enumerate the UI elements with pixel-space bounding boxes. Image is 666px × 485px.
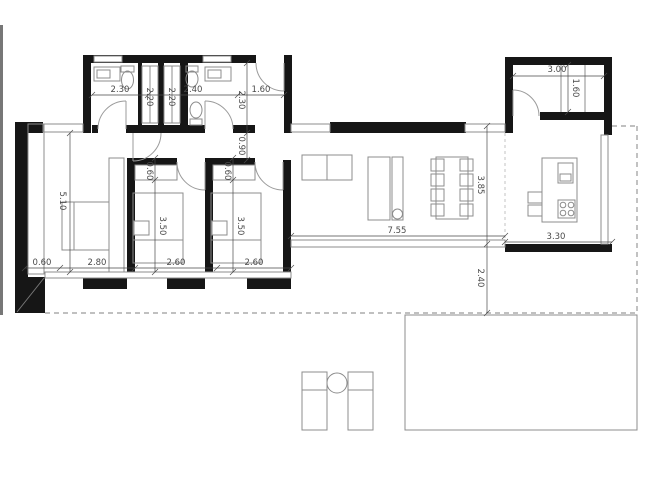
dim-label-store-width: 3.00 bbox=[548, 65, 567, 75]
bed2-door-arc bbox=[177, 162, 205, 190]
dim-label-master-length: 5.10 bbox=[57, 192, 67, 211]
dim-label-living-depth: 3.85 bbox=[475, 176, 485, 195]
planter bbox=[393, 209, 403, 219]
sofa-seat bbox=[302, 155, 327, 180]
stool bbox=[528, 192, 542, 203]
vanity bbox=[205, 67, 231, 81]
kitchen-island bbox=[542, 158, 577, 222]
dim-label-bath1-width: 2.30 bbox=[111, 85, 130, 95]
dim-label-closet-strip-a: 2.20 bbox=[144, 88, 154, 107]
dimension-labels: 2.30 2.40 1.60 2.20 2.20 2.30 0.90 0.60 … bbox=[33, 65, 580, 287]
wall-segment bbox=[126, 125, 188, 133]
washbasin bbox=[97, 70, 110, 78]
kitchen-sink-basin bbox=[560, 174, 571, 181]
burner bbox=[568, 210, 574, 216]
sideboard bbox=[368, 157, 390, 220]
wall-segment bbox=[138, 63, 142, 125]
master-door-arc bbox=[133, 133, 161, 161]
dim-label-closet-strip-b: 2.20 bbox=[166, 88, 176, 107]
dim-label-master-width: 2.80 bbox=[88, 258, 107, 268]
dining-chair bbox=[431, 159, 444, 171]
window bbox=[203, 56, 231, 62]
dim-label-store-depth: 1.60 bbox=[570, 79, 580, 98]
wall-segment bbox=[127, 158, 135, 278]
wall-segment bbox=[505, 244, 612, 252]
wall-segment bbox=[158, 63, 164, 125]
toilet bbox=[190, 102, 202, 118]
stool bbox=[528, 205, 542, 216]
toilet-cistern bbox=[190, 119, 202, 125]
dim-label-bed2-length: 3.50 bbox=[157, 217, 167, 236]
dim-label-west-wall: 0.60 bbox=[33, 258, 52, 268]
dining-chair bbox=[460, 204, 473, 216]
dim-label-entry-width: 1.60 bbox=[252, 85, 271, 95]
scan-edge-artifact bbox=[0, 25, 3, 315]
wall-segment bbox=[92, 125, 98, 133]
dim-label-bed3-length: 3.50 bbox=[235, 217, 245, 236]
window bbox=[43, 124, 83, 132]
patio-table bbox=[327, 373, 347, 393]
window bbox=[291, 124, 330, 132]
wall-segment bbox=[135, 158, 177, 165]
floor-plan-sheet: 2.30 2.40 1.60 2.20 2.20 2.30 0.90 0.60 … bbox=[0, 0, 666, 485]
wall-segment bbox=[330, 122, 466, 133]
wall-segment bbox=[283, 160, 291, 278]
dining-chair bbox=[431, 189, 444, 201]
burner bbox=[568, 202, 574, 208]
wall-segment bbox=[233, 125, 255, 133]
dim-label-living-width: 7.55 bbox=[388, 226, 407, 236]
dim-label-bed2-closet: 0.60 bbox=[144, 162, 154, 181]
bath1-door-arc bbox=[98, 101, 126, 129]
master-bed bbox=[62, 202, 109, 250]
wall-segment bbox=[505, 57, 612, 65]
dim-label-bed2-width: 2.60 bbox=[167, 258, 186, 268]
wall-segment bbox=[505, 57, 513, 133]
dim-label-bed3-closet: 0.60 bbox=[222, 162, 232, 181]
sun-lounger bbox=[302, 372, 327, 430]
bed2-closet bbox=[135, 165, 177, 180]
wardrobe bbox=[109, 158, 124, 272]
washbasin bbox=[208, 70, 221, 78]
burner bbox=[560, 210, 566, 216]
wall-segment bbox=[213, 158, 255, 165]
wall-segment bbox=[188, 125, 205, 133]
dim-label-hall-depth: 2.30 bbox=[236, 91, 246, 110]
dim-label-terrace-depth: 2.40 bbox=[475, 269, 485, 288]
sliding-panel bbox=[247, 278, 291, 289]
sun-lounger bbox=[348, 372, 373, 430]
dining-chair bbox=[431, 204, 444, 216]
furniture bbox=[62, 155, 577, 430]
dining-table bbox=[436, 157, 468, 219]
nightstand bbox=[134, 221, 149, 235]
wall-segment bbox=[540, 112, 612, 120]
sofa-seat bbox=[327, 155, 352, 180]
dim-label-hall-passage: 0.90 bbox=[236, 137, 246, 156]
nightstand bbox=[212, 221, 227, 235]
wall-lining bbox=[28, 124, 44, 274]
wall-segment bbox=[205, 158, 213, 278]
bed3-door-arc bbox=[255, 162, 283, 190]
dining-chair bbox=[460, 174, 473, 186]
burner bbox=[560, 202, 566, 208]
dining-chair bbox=[460, 189, 473, 201]
dining-chair bbox=[431, 174, 444, 186]
dim-label-bath2-width: 2.40 bbox=[184, 85, 203, 95]
dim-label-kitchen-width: 3.30 bbox=[547, 232, 566, 242]
dining-chair bbox=[460, 159, 473, 171]
window bbox=[94, 56, 122, 62]
pool bbox=[405, 315, 637, 430]
sliding-panel bbox=[83, 278, 127, 289]
store-door-arc bbox=[513, 90, 539, 116]
wall-segment bbox=[604, 57, 612, 135]
window bbox=[601, 135, 608, 244]
vanity bbox=[94, 67, 120, 81]
floor-plan-drawing: 2.30 2.40 1.60 2.20 2.20 2.30 0.90 0.60 … bbox=[0, 0, 666, 485]
sliding-panel bbox=[167, 278, 205, 289]
glass-wall bbox=[45, 272, 291, 278]
dim-label-bed3-width: 2.60 bbox=[245, 258, 264, 268]
glass-wall bbox=[291, 240, 505, 247]
wall-segment bbox=[83, 55, 91, 133]
bed3-closet bbox=[213, 165, 255, 180]
bath2-door-arc bbox=[205, 101, 233, 129]
